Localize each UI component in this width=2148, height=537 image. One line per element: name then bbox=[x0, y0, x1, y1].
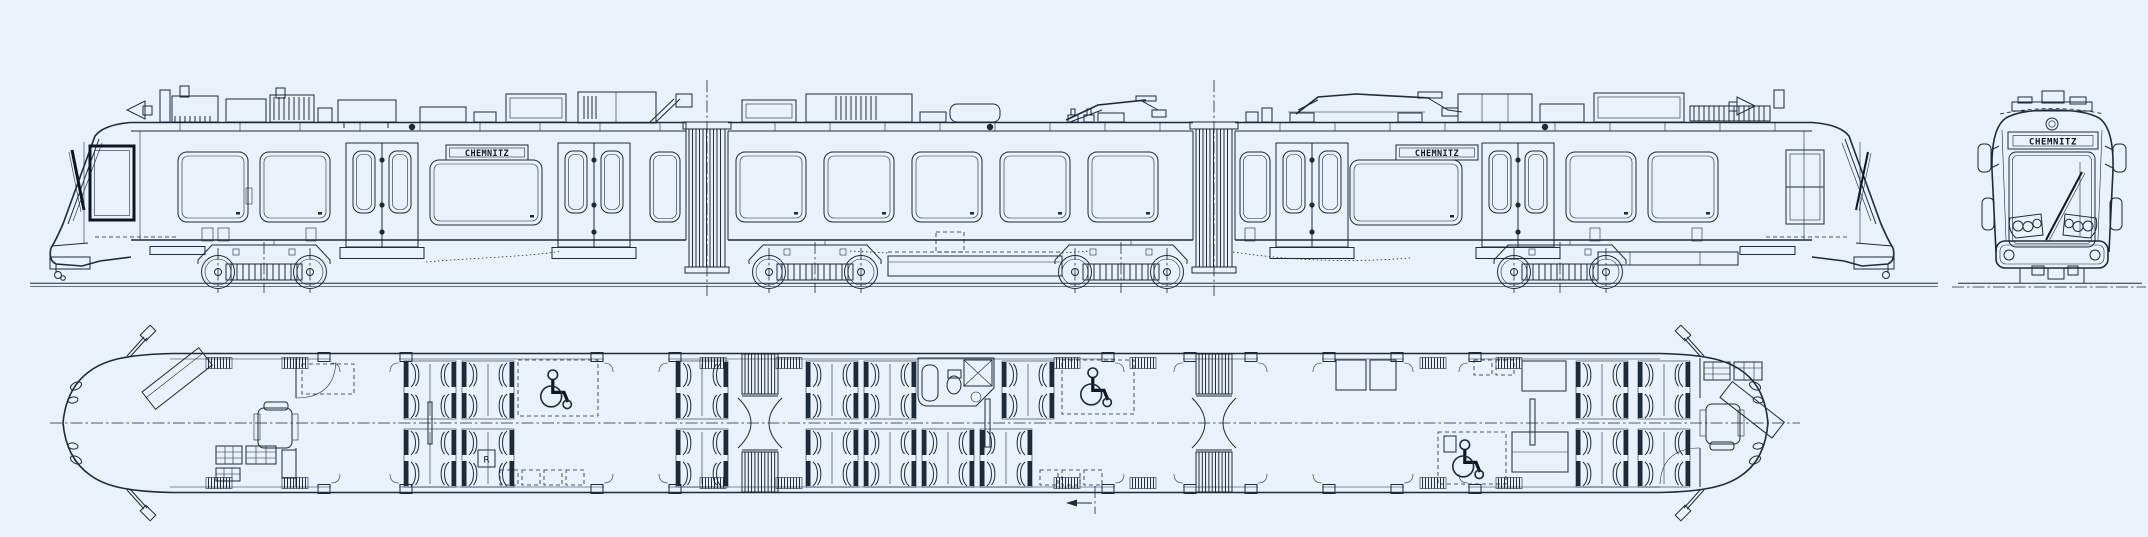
toilet-module bbox=[918, 358, 994, 406]
window bbox=[824, 152, 894, 222]
passenger-door bbox=[1482, 143, 1554, 247]
tram-technical-drawing: CHEMNITZ bbox=[0, 0, 2148, 537]
seat-bay bbox=[1638, 361, 1690, 419]
equipment-box bbox=[1522, 361, 1566, 391]
window bbox=[430, 160, 542, 225]
seat-bay bbox=[1576, 361, 1628, 419]
front-skirt bbox=[150, 247, 205, 255]
coupler-icon bbox=[50, 257, 90, 280]
wheelchair-icon bbox=[541, 370, 572, 409]
front-view: CHEMNITZ bbox=[1952, 91, 2146, 287]
destination-text: CHEMNITZ bbox=[1415, 149, 1459, 159]
folding-seat bbox=[544, 470, 562, 485]
folding-seat bbox=[1474, 360, 1492, 375]
floor-plan-view: R bbox=[50, 325, 1800, 521]
luggage-rack bbox=[1336, 360, 1366, 390]
pantograph-icon bbox=[1066, 96, 1166, 122]
seat-bay bbox=[806, 429, 858, 487]
window bbox=[650, 152, 680, 222]
destination-text: CHEMNITZ bbox=[2029, 137, 2077, 147]
destination-sign-front: CHEMNITZ bbox=[2008, 132, 2098, 149]
windshield bbox=[2009, 152, 2095, 247]
seat-bay bbox=[980, 429, 1032, 487]
toilet-icon bbox=[947, 376, 961, 394]
wheelchair-icon bbox=[1081, 368, 1112, 407]
resistor-box bbox=[270, 95, 314, 122]
door-step bbox=[1270, 248, 1354, 259]
rear-nose bbox=[1740, 123, 1894, 279]
folding-seat bbox=[1084, 470, 1102, 485]
seat-bay bbox=[1002, 361, 1054, 419]
seat-bay bbox=[676, 361, 728, 419]
folding-seat bbox=[522, 470, 540, 485]
seat-bay bbox=[922, 429, 974, 487]
passenger-door bbox=[1276, 143, 1348, 247]
window bbox=[1566, 152, 1636, 222]
seat-bay bbox=[1638, 429, 1690, 487]
door-step bbox=[552, 248, 636, 259]
mirror-icon bbox=[1978, 144, 1999, 230]
driver-console bbox=[142, 348, 212, 410]
destination-sign-car-a: CHEMNITZ bbox=[446, 145, 528, 160]
window bbox=[912, 152, 982, 222]
destination-sign-car-c: CHEMNITZ bbox=[1396, 145, 1478, 160]
window bbox=[1240, 152, 1270, 222]
driver-seat bbox=[254, 402, 298, 448]
destination-text: CHEMNITZ bbox=[465, 149, 509, 159]
underfloor-skirt-box bbox=[1598, 252, 1738, 265]
bogie bbox=[749, 240, 881, 293]
headlight-cluster bbox=[2009, 214, 2043, 238]
rear-skirt bbox=[1740, 247, 1795, 255]
passenger-door bbox=[558, 143, 630, 247]
seat-bay bbox=[864, 361, 916, 419]
underfloor-equipment-box bbox=[888, 256, 1062, 276]
partition-screen bbox=[1530, 399, 1535, 445]
luggage-rack bbox=[1370, 360, 1396, 390]
passenger-door bbox=[346, 143, 418, 247]
multipurpose-area bbox=[1438, 432, 1506, 484]
car-a-body: CHEMNITZ bbox=[131, 123, 686, 263]
roof-equipment bbox=[127, 86, 1784, 130]
window bbox=[178, 152, 248, 222]
seat-bay bbox=[806, 361, 858, 419]
seat-bay bbox=[404, 361, 456, 419]
window bbox=[736, 152, 806, 222]
window bbox=[1000, 152, 1070, 222]
door-step bbox=[340, 248, 424, 259]
seat-bay bbox=[864, 429, 916, 487]
wheelchair-icon bbox=[1453, 440, 1484, 479]
hvac-unit bbox=[578, 92, 656, 123]
window bbox=[1350, 160, 1462, 225]
mirror-icon bbox=[2105, 144, 2126, 230]
direction-arrow-icon bbox=[1066, 486, 1095, 514]
hvac-unit bbox=[1458, 94, 1532, 122]
bogie bbox=[1055, 240, 1187, 293]
blueprint-canvas: CHEMNITZ bbox=[0, 0, 2148, 537]
side-elevation-view: CHEMNITZ bbox=[30, 80, 1938, 296]
seat-bay bbox=[404, 429, 456, 487]
windshield-wiper-icon bbox=[2046, 172, 2085, 241]
compartment-label-r: R bbox=[478, 450, 495, 467]
traction-converter bbox=[806, 94, 912, 122]
horn-icon bbox=[127, 101, 152, 119]
label-text: R bbox=[483, 456, 489, 466]
door-step bbox=[1476, 248, 1560, 259]
pantograph-icon bbox=[1246, 92, 1462, 122]
car-c-body: CHEMNITZ bbox=[1233, 123, 1824, 266]
seat-bay bbox=[1576, 429, 1628, 487]
coupler-icon bbox=[1854, 257, 1894, 279]
bogie bbox=[198, 240, 330, 293]
cab-equipment-cabinets bbox=[216, 446, 296, 481]
folding-seat bbox=[566, 470, 584, 485]
window bbox=[260, 152, 330, 222]
seat-bay bbox=[462, 361, 514, 419]
window bbox=[1088, 152, 1158, 222]
driver-console bbox=[1720, 382, 1784, 438]
car-b-body bbox=[728, 123, 1193, 277]
window bbox=[1648, 152, 1718, 222]
